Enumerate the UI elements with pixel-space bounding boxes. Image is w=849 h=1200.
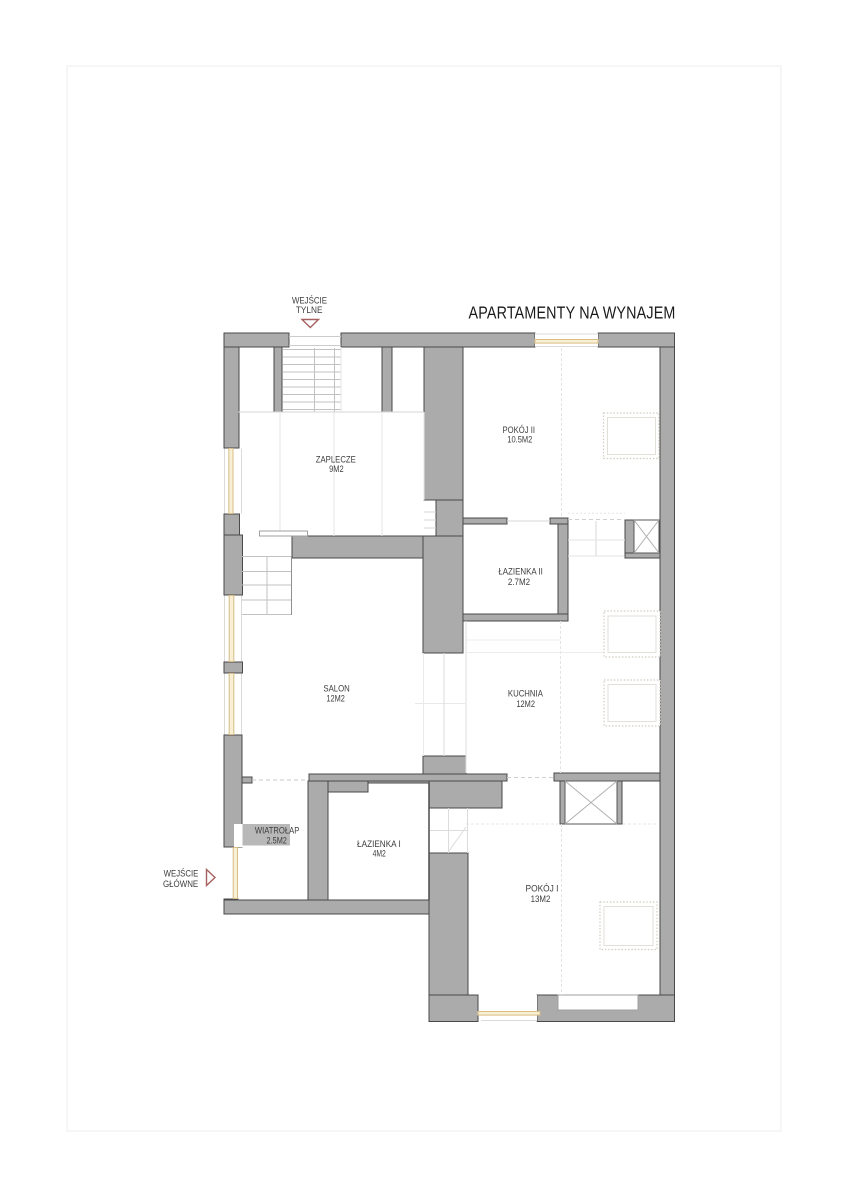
svg-text:2.5M2: 2.5M2 xyxy=(267,835,287,845)
svg-text:WIATROŁAP: WIATROŁAP xyxy=(255,825,299,835)
svg-text:ZAPLECZE: ZAPLECZE xyxy=(316,455,356,465)
svg-text:4M2: 4M2 xyxy=(373,849,386,859)
svg-text:12M2: 12M2 xyxy=(326,693,344,703)
svg-text:GŁÓWNE: GŁÓWNE xyxy=(163,879,198,889)
svg-text:10.5M2: 10.5M2 xyxy=(507,435,532,445)
svg-text:12M2: 12M2 xyxy=(516,699,535,709)
svg-text:ŁAZIENKA II: ŁAZIENKA II xyxy=(498,567,543,577)
svg-text:WEJŚCIE: WEJŚCIE xyxy=(164,867,199,878)
svg-text:13M2: 13M2 xyxy=(531,894,551,904)
svg-text:POKÓJ II: POKÓJ II xyxy=(503,425,536,435)
svg-text:KUCHNIA: KUCHNIA xyxy=(508,689,543,699)
svg-text:APARTAMENTY NA WYNAJEM: APARTAMENTY NA WYNAJEM xyxy=(469,303,676,323)
svg-text:POKÓJ I: POKÓJ I xyxy=(526,884,559,894)
svg-text:SALON: SALON xyxy=(323,684,349,694)
svg-text:2.7M2: 2.7M2 xyxy=(508,577,530,587)
svg-text:9M2: 9M2 xyxy=(329,464,344,474)
svg-text:TYLNE: TYLNE xyxy=(296,305,323,315)
